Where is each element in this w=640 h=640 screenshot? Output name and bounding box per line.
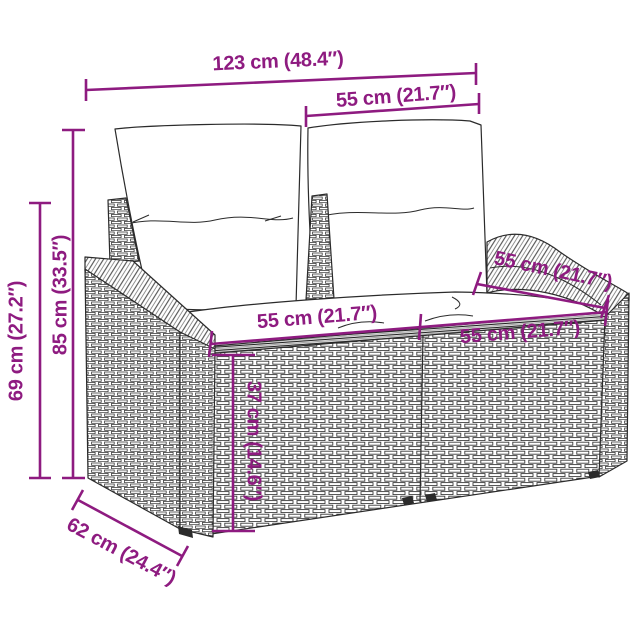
armrest-height-label: 69 cm (27.2″) [6,281,29,401]
dimension-diagram: 123 cm (48.4″) 55 cm (21.7″) 85 cm (33.5… [0,0,640,640]
dimension-line-armrest-height [29,203,51,478]
back-height-label: 85 cm (33.5″) [50,235,73,355]
back-cushion-right [308,120,487,304]
left-armrest-front [180,332,215,537]
seat-height-label: 37 cm (14.6″) [242,381,265,501]
